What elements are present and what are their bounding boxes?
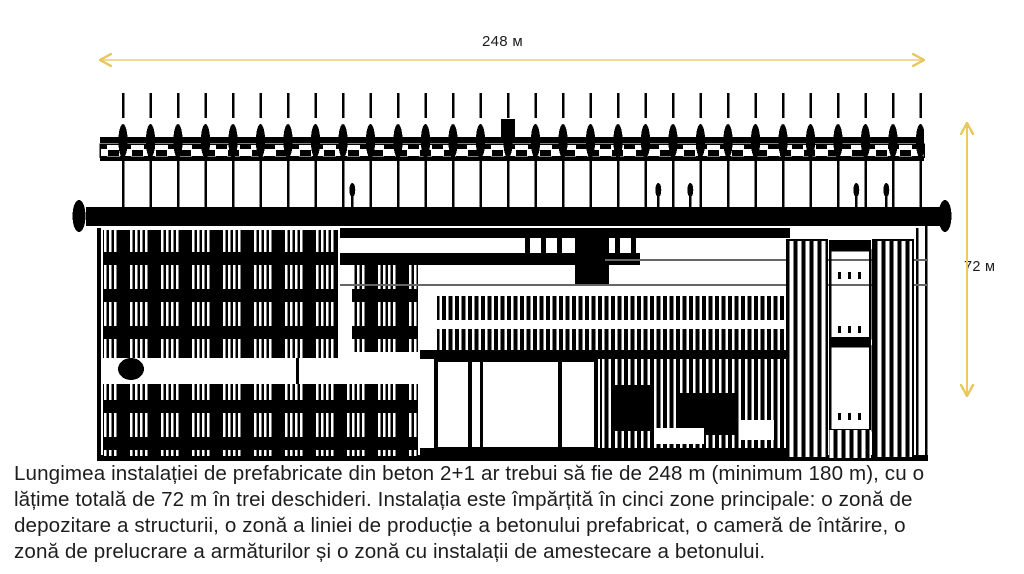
length-dimension-arrow bbox=[100, 54, 924, 66]
page: 248 м 72 м bbox=[0, 0, 1024, 574]
curing-chamber-rooms bbox=[420, 359, 790, 458]
caption-line-2: lățime totală de 72 m în trei deschideri… bbox=[14, 487, 1016, 513]
caption: Lungimea instalației de prefabricate din… bbox=[14, 461, 1016, 565]
colonnade-row bbox=[100, 93, 924, 212]
caption-line-4: zonă de prelucrare a armăturilor și o zo… bbox=[14, 539, 1016, 565]
caption-line-1: Lungimea instalației de prefabricate din… bbox=[14, 461, 1016, 487]
caption-line-3: depozitare a structurii, o zonă a liniei… bbox=[14, 513, 1016, 539]
width-dimension-arrow bbox=[961, 123, 973, 396]
mixing-plant-zone bbox=[787, 240, 913, 458]
